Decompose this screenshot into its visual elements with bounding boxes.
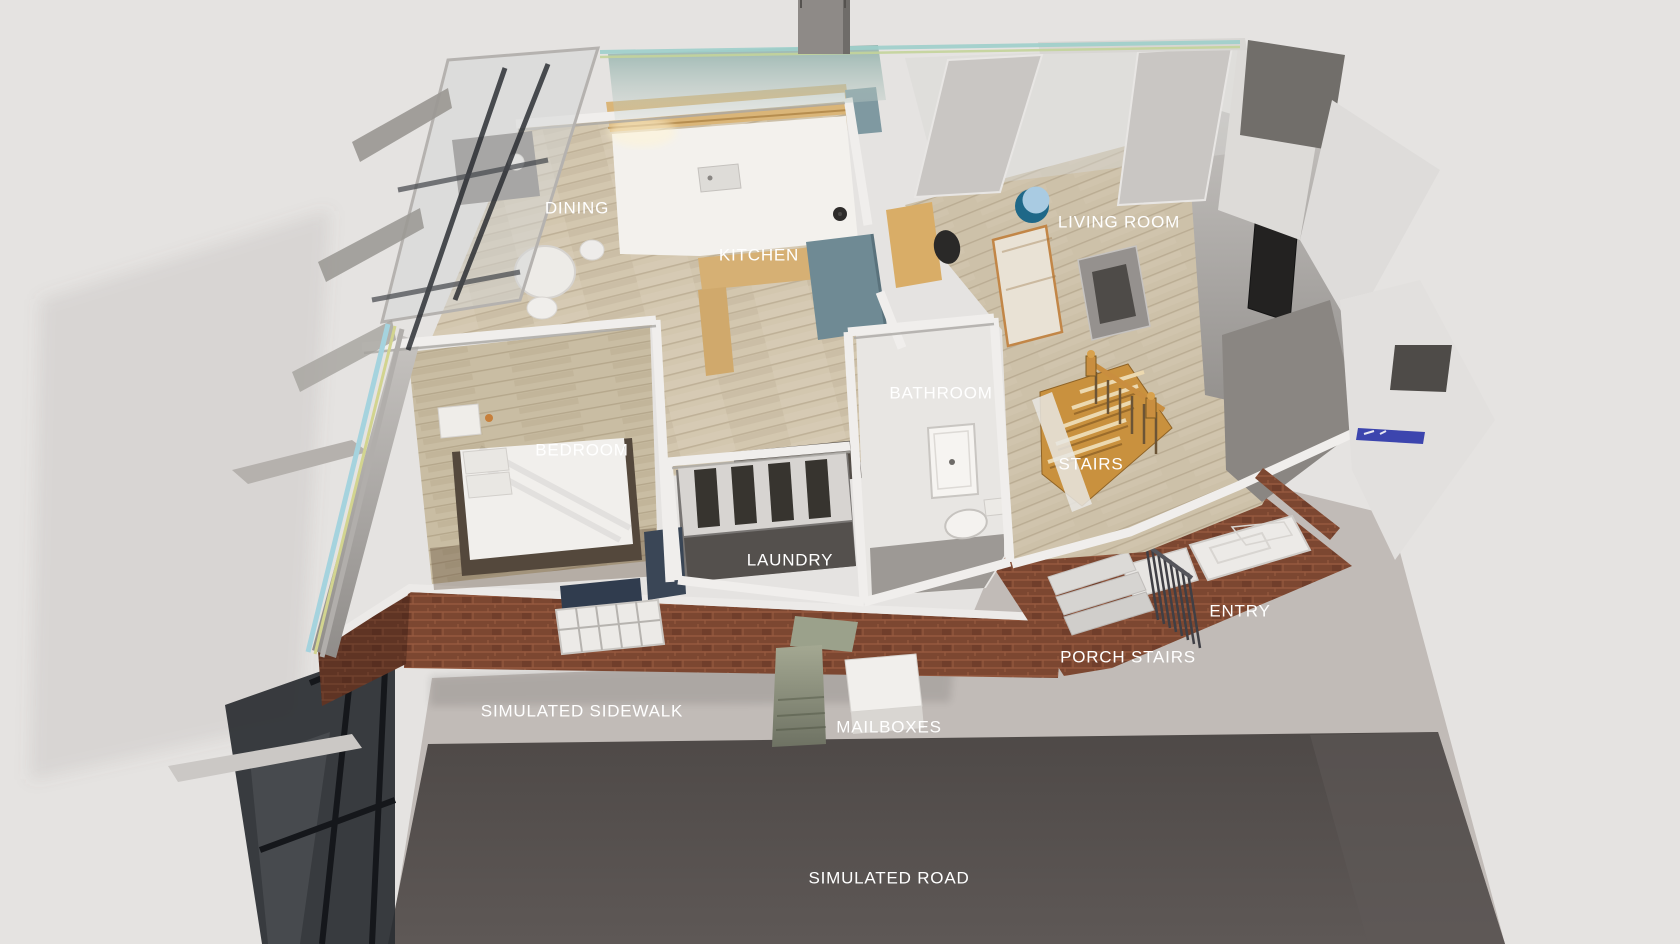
- bay-niche: [1390, 345, 1452, 392]
- pillow: [463, 448, 509, 474]
- dining-chair: [580, 240, 604, 260]
- laundry-room: [676, 452, 856, 582]
- lamp: [485, 414, 493, 422]
- simulation-viewport: DININGKITCHENLIVING ROOMBATHROOMBEDROOMS…: [0, 0, 1680, 944]
- mailbox-pedestal: [772, 645, 826, 747]
- sink: [698, 164, 741, 192]
- nightstand: [438, 404, 481, 438]
- road: [388, 732, 1505, 944]
- newel-post: [1086, 356, 1096, 376]
- pillow: [466, 472, 512, 498]
- mailbox-unit: [845, 654, 922, 712]
- dining-chair: [527, 297, 557, 319]
- desk: [886, 202, 942, 288]
- scene-render: [0, 0, 1680, 944]
- chimney: [798, 0, 850, 54]
- bathroom: [856, 320, 1006, 598]
- cellar-window-grate: [556, 600, 664, 654]
- newel-post: [1146, 398, 1156, 418]
